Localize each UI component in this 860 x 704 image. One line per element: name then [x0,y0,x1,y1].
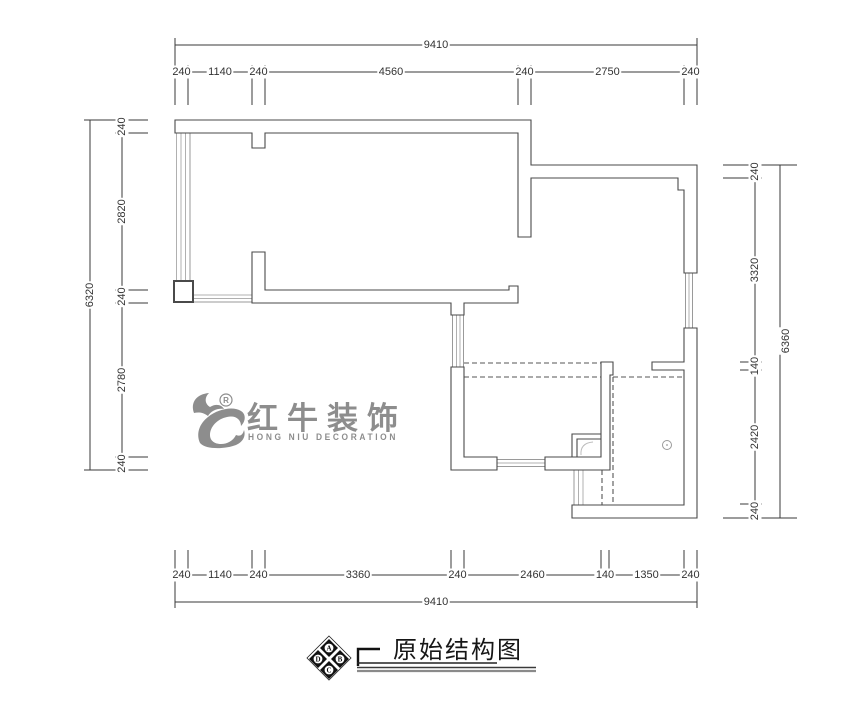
dim-label: 240 [116,117,128,135]
window-sill-left [193,295,252,302]
dim-label: 6360 [780,329,792,353]
window-mid [453,315,464,367]
wall-upper-structure [175,120,697,273]
dim-label: 4560 [379,66,403,78]
shower-corner [572,434,601,457]
dim-label: 6320 [84,283,96,307]
dim-label: 2420 [749,425,761,449]
window-right [686,273,693,328]
dim-label: 9410 [424,39,448,51]
floor-plan-canvas: 9410 240 1140 240 4560 240 2750 240 240 … [0,0,860,704]
dim-label: 3360 [346,569,370,581]
drawing-title: 原始结构图 [393,637,523,664]
floor-drain-icon [663,441,672,450]
wall-lower-left-room [451,367,497,470]
title-block: A B C D 原始结构图 [307,636,536,680]
dim-label: 9410 [424,596,448,608]
dim-label: 140 [749,357,761,375]
dim-label: 240 [681,569,699,581]
column [174,281,193,302]
dim-label: 240 [172,66,190,78]
window-left [177,133,191,281]
dim-label: 240 [749,162,761,180]
dim-label: 2460 [520,569,544,581]
compass-icon: A B C D [307,636,351,680]
dim-label: 1350 [634,569,658,581]
dim-label: 240 [681,66,699,78]
wall-partition [545,362,613,470]
bull-icon [193,393,245,448]
svg-text:B: B [338,656,343,664]
dim-label: 240 [448,569,466,581]
dim-label: 240 [249,66,267,78]
dim-label: 1140 [208,569,232,581]
windows [177,133,693,505]
window-bottom-outer [574,470,583,505]
svg-text:D: D [315,656,320,664]
dim-label: 2750 [595,66,619,78]
shower-outer-line [572,434,601,457]
walls [174,120,697,518]
svg-text:C: C [326,667,331,675]
dim-label: 2780 [116,368,128,392]
dim-label: 3320 [749,258,761,282]
logo-watermark: R 红牛装饰 HONG NIU DECORATION [193,393,407,448]
dim-label: 240 [749,502,761,520]
wall-lower-right [572,328,697,518]
dim-label: 240 [249,569,267,581]
wall-middle [252,252,518,315]
dim-label: 1140 [208,66,232,78]
dim-label: 240 [172,569,190,581]
cad-drawing-sheet: 9410 240 1140 240 4560 240 2750 240 240 … [0,0,860,704]
registered-mark: R [220,394,232,406]
dim-label: 2820 [116,199,128,223]
svg-text:R: R [223,396,229,405]
window-bottom-room [497,460,545,467]
shower-arc [581,442,593,455]
dim-label: 240 [116,287,128,305]
logo-name-en: HONG NIU DECORATION [248,432,398,443]
svg-text:A: A [326,645,331,653]
dim-label: 240 [515,66,533,78]
dim-label: 140 [596,569,614,581]
logo-name-cn: 红牛装饰 [247,401,407,436]
dim-label: 240 [116,454,128,472]
